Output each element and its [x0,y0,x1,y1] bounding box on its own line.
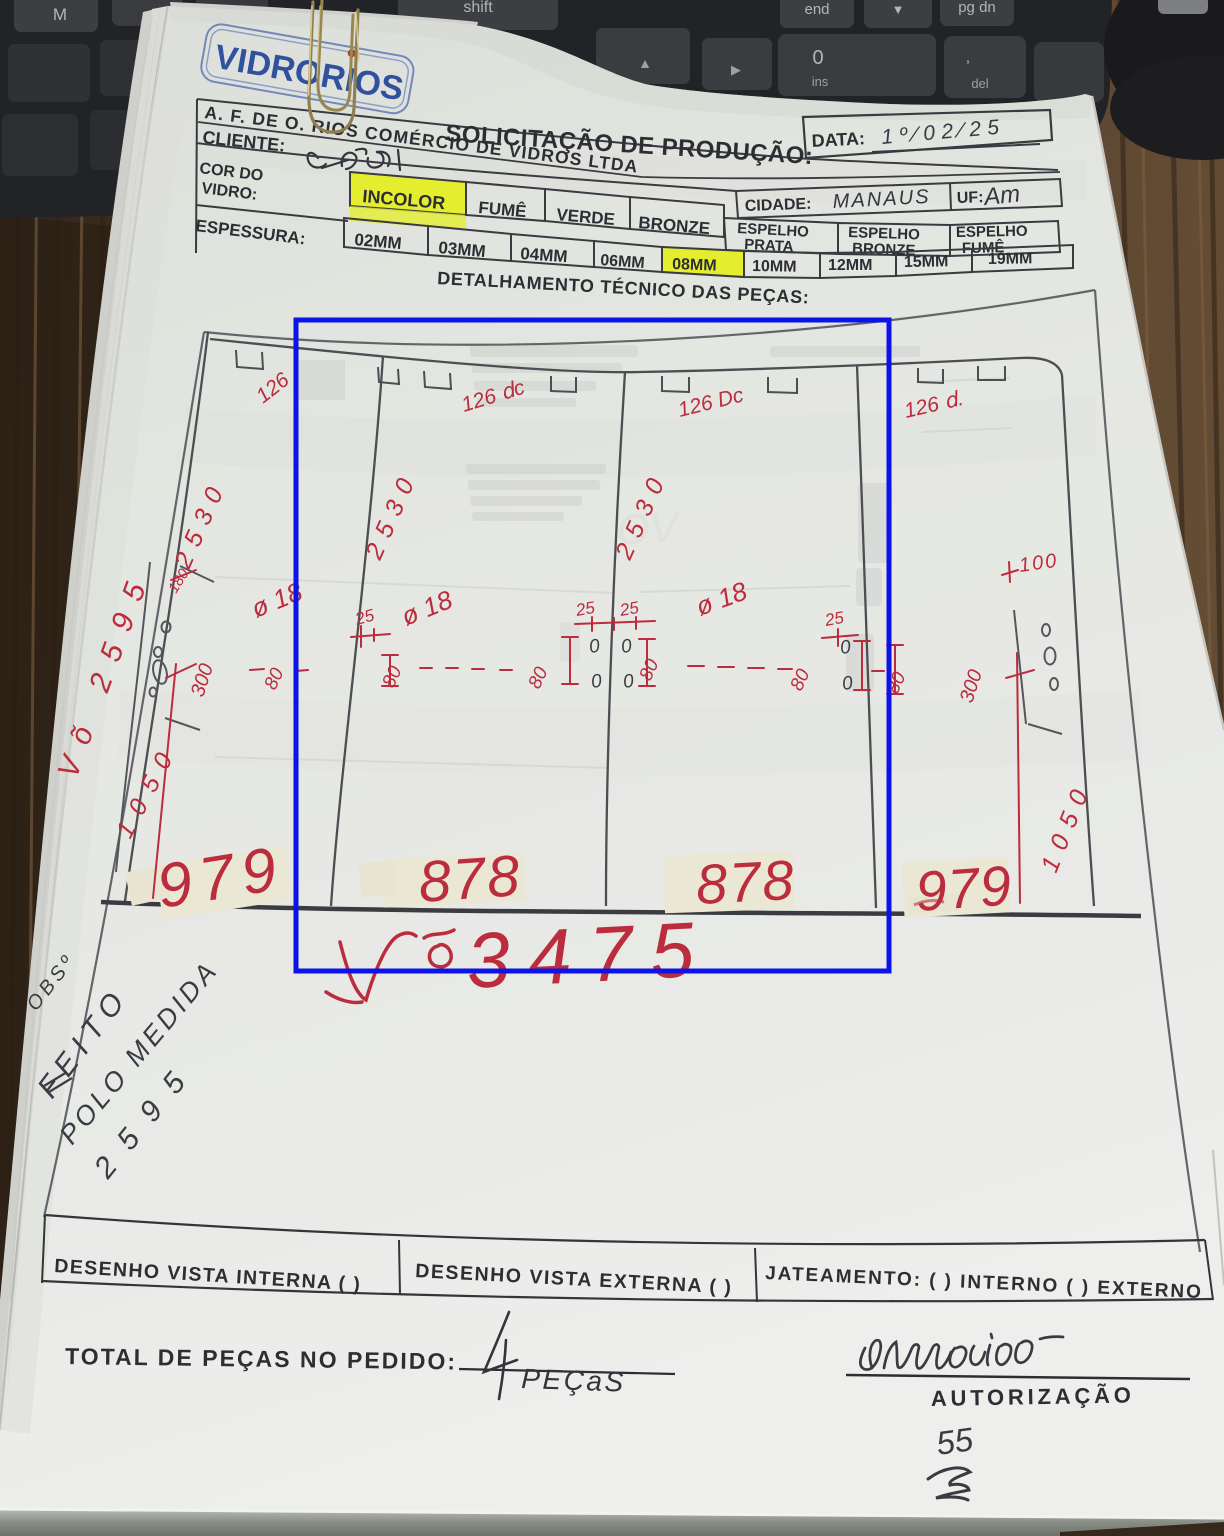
svg-text:10MM: 10MM [752,258,797,276]
svg-text:DATA:: DATA: [811,128,865,151]
svg-text:,: , [966,49,970,66]
svg-text:12MM: 12MM [828,257,872,274]
svg-text:15MM: 15MM [904,253,949,271]
svg-text:3475: 3475 [464,904,714,1005]
svg-text:878: 878 [416,843,523,915]
svg-text:end: end [804,1,829,18]
svg-text:0: 0 [812,47,823,69]
svg-text:Am: Am [981,180,1022,211]
svg-text:979: 979 [913,853,1014,923]
svg-text:▲: ▲ [638,55,652,71]
svg-text:M: M [53,5,67,24]
svg-text:AUTORIZAÇÃO: AUTORIZAÇÃO [931,1383,1131,1411]
svg-text:55: 55 [934,1420,976,1462]
svg-text:06MM: 06MM [600,252,646,272]
svg-text:878: 878 [694,848,797,916]
svg-text:19MM: 19MM [988,250,1033,268]
svg-text:▶: ▶ [731,62,741,77]
svg-text:25: 25 [573,598,596,620]
svg-text:pg dn: pg dn [958,0,996,16]
svg-text:ins: ins [812,74,829,89]
svg-text:UF:: UF: [957,189,984,207]
svg-text:CIDADE:: CIDADE: [745,196,812,215]
svg-text:08MM: 08MM [672,256,717,275]
svg-text:TOTAL DE PEÇAS NO PEDIDO:: TOTAL DE PEÇAS NO PEDIDO: [65,1343,455,1374]
svg-text:PEÇaS: PEÇaS [521,1363,624,1398]
svg-text:ESPELHO: ESPELHO [956,223,1028,241]
svg-text:shift: shift [463,0,493,16]
svg-text:25: 25 [822,608,845,630]
svg-text:04MM: 04MM [520,244,568,266]
svg-text:▼: ▼ [892,2,905,17]
svg-text:25: 25 [617,598,640,620]
svg-text:del: del [971,76,988,91]
